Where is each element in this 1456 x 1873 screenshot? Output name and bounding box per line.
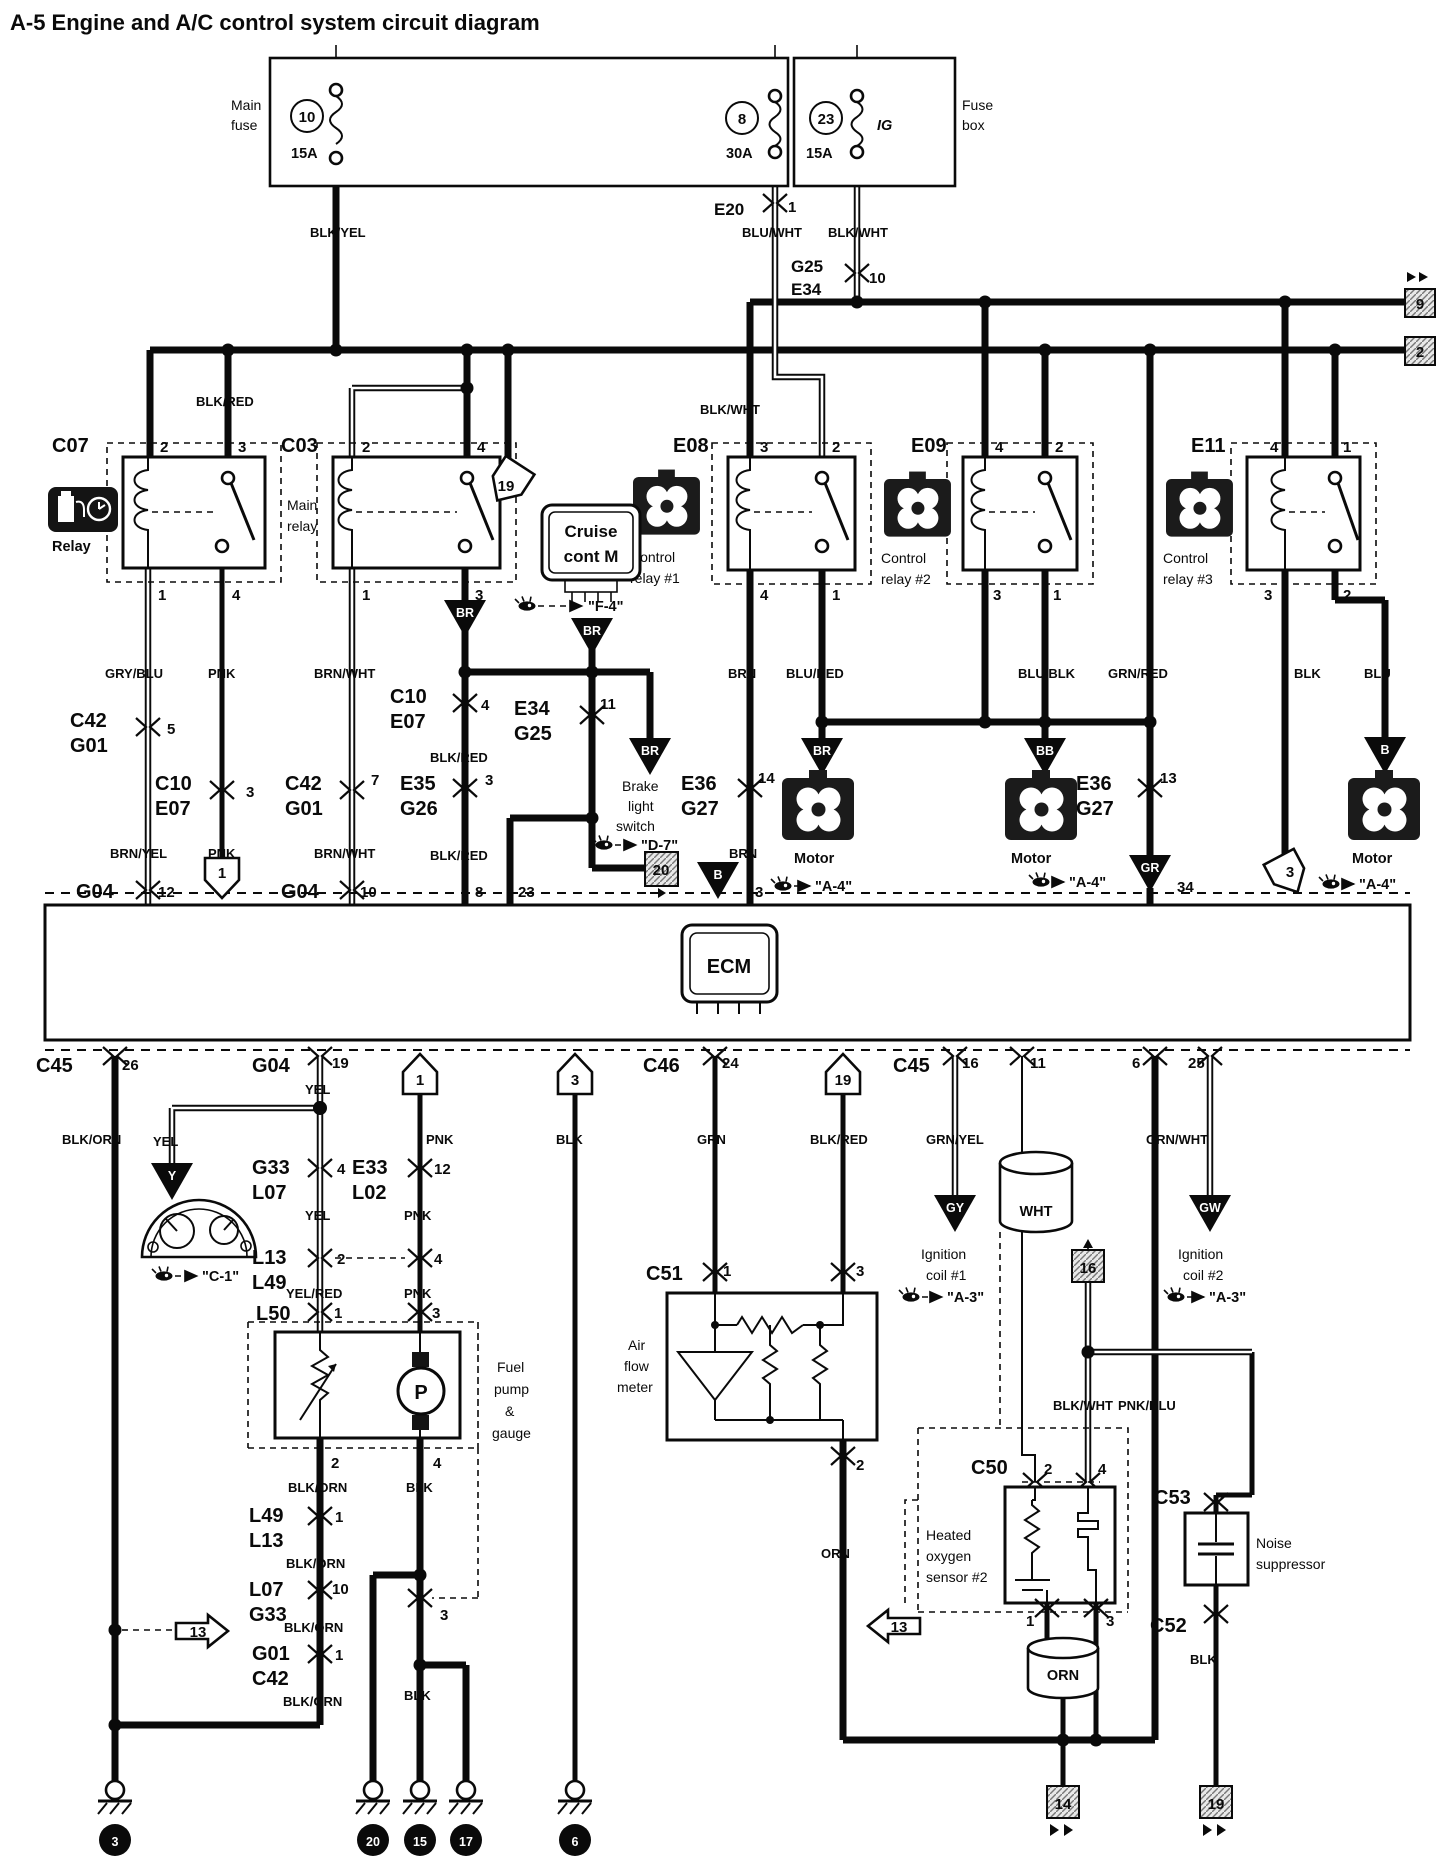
fuse-8-amp: 30A	[726, 146, 753, 162]
e08-pin-2: 2	[832, 439, 840, 456]
top-connectors: E20 1 BLU/WHT BLK/WHT G25 E34 10 BLK/YEL	[310, 194, 888, 299]
arrow-13-right: 13	[190, 1624, 207, 1641]
ecm-pin-11: 11	[1030, 1055, 1046, 1072]
c51-pin-3: 3	[856, 1263, 864, 1280]
l50-label: L50	[256, 1303, 290, 1325]
brake-label-1: Brake	[622, 778, 659, 794]
relay-e11: E11 4 1 3 2 Control relay #3	[1163, 435, 1376, 604]
e08-label: E08	[673, 435, 709, 457]
ref-a4-2: "A-4"	[1069, 875, 1106, 891]
l13-l49-b: L49	[252, 1272, 286, 1294]
ref-a3-1: "A-3"	[947, 1290, 984, 1306]
c51-label: C51	[646, 1263, 683, 1285]
blk-wht-label-e08: BLK/WHT	[700, 402, 760, 417]
afm-label-3: meter	[617, 1379, 653, 1395]
arrow-3-top: 3	[1286, 864, 1294, 881]
g25-e34-pin-10: 10	[869, 270, 886, 287]
cruise-label-1: Cruise	[565, 522, 618, 541]
continuation-16: 16	[1080, 1260, 1097, 1277]
code-br-3: BR	[641, 744, 659, 758]
afm-pin-2: 2	[856, 1457, 864, 1474]
motor-2-label: Motor	[1011, 851, 1052, 867]
g01-c42-a: G01	[252, 1643, 290, 1665]
e08-pin-3: 3	[760, 439, 768, 456]
ign2-label-1: Ignition	[1178, 1246, 1223, 1262]
l13-l49-a: L13	[252, 1247, 286, 1269]
arrow-1-top: 1	[218, 865, 226, 882]
c10-e07-pin-4: 4	[481, 697, 490, 714]
e11-pin-2: 2	[1343, 587, 1351, 604]
ground-15: 15	[413, 1835, 427, 1849]
c07-pin-4: 4	[232, 587, 241, 604]
l13-l49-pin-4: 4	[434, 1251, 443, 1268]
continuation-20: 20	[653, 862, 670, 879]
main-relay-label-1: Main	[287, 497, 317, 513]
e33-l02-pin-12: 12	[434, 1161, 451, 1178]
wht-label: WHT	[1019, 1204, 1052, 1220]
fuel-label-3: &	[505, 1403, 515, 1419]
fuse-box-label-2: box	[962, 117, 985, 133]
pnk-label-5: PNK	[404, 1286, 432, 1301]
blu-wht-label: BLU/WHT	[742, 225, 802, 240]
code-br-1: BR	[456, 606, 474, 620]
c42-g01-5-a: C42	[70, 710, 107, 732]
blk-orn-label-2: BLK/ORN	[288, 1480, 347, 1495]
ground-14: 14	[1055, 1796, 1072, 1813]
arrow-1-bottom: 1	[416, 1072, 424, 1089]
e11-pin-3: 3	[1264, 587, 1272, 604]
continuation-9: 9	[1416, 296, 1424, 313]
e08-pin-4: 4	[760, 587, 769, 604]
e34-g25-b: G25	[514, 723, 552, 745]
e36-g27-pin-13: 13	[1160, 770, 1177, 787]
e35-g26-pin-3: 3	[485, 772, 493, 789]
wiring-diagram-page: A-5 Engine and A/C control system circui…	[0, 0, 1456, 1868]
pnk-label-1: PNK	[208, 666, 236, 681]
fuel-pump-gauge: P Fuel pump & gauge 2 4 BLK/ORN BLK	[275, 1332, 531, 1495]
gry-blu-label: GRY/BLU	[105, 666, 163, 681]
e11-pin-4: 4	[1270, 439, 1279, 456]
e34-g25-a: E34	[514, 698, 550, 720]
e33-l02-a: E33	[352, 1157, 388, 1179]
relay-label: Relay	[52, 539, 91, 555]
blk-label-3: BLK	[406, 1480, 433, 1495]
ref-a3-2: "A-3"	[1209, 1290, 1246, 1306]
fuel-pin-4: 4	[433, 1455, 442, 1472]
fuel-pin-2: 2	[331, 1455, 339, 1472]
ig-label: IG	[877, 118, 892, 134]
c03-pin-4: 4	[477, 439, 486, 456]
ground-19: 19	[1208, 1796, 1225, 1813]
page-title: A-5 Engine and A/C control system circui…	[10, 10, 540, 35]
l49-l13-b: L13	[249, 1530, 283, 1552]
grn-yel-label: GRN/YEL	[926, 1132, 984, 1147]
l07-g33-pin-10: 10	[332, 1581, 349, 1598]
c03-pin-2: 2	[362, 439, 370, 456]
yel-red-label: YEL/RED	[286, 1286, 342, 1301]
e36-g27-14-b: G27	[681, 798, 719, 820]
ign1-label-1: Ignition	[921, 1246, 966, 1262]
e20-pin-1: 1	[788, 199, 796, 216]
ecm-bottom-pins: C45 26 BLK/ORN G04 19 YEL 1 PNK 3 BLK C4…	[36, 1047, 1222, 1147]
l49-l13-pin-1: 1	[335, 1509, 343, 1526]
c42-g01-pin-5: 5	[167, 721, 175, 738]
main-fuse-label-1: Main	[231, 97, 261, 113]
o2-label-2: oxygen	[926, 1548, 971, 1564]
g04-pin-19: 19	[332, 1055, 349, 1072]
e34-g25-pin-11: 11	[600, 696, 616, 713]
circuit-diagram: A-5 Engine and A/C control system circui…	[0, 0, 1456, 1868]
blk-orn-label-5: BLK/ORN	[283, 1694, 342, 1709]
c42-g01-pin-7: 7	[371, 772, 379, 789]
c07-pin-1: 1	[158, 587, 166, 604]
control-relay-3-label-1: Control	[1163, 550, 1208, 566]
o2-label-3: sensor #2	[926, 1569, 988, 1585]
ground-17: 17	[459, 1835, 473, 1849]
grn-label: GRN	[697, 1132, 726, 1147]
e36-g27-14-a: E36	[681, 773, 717, 795]
code-br-4: BR	[813, 744, 831, 758]
code-y: Y	[168, 1169, 177, 1183]
code-b-motor3: B	[1380, 743, 1389, 757]
control-relay-2-label-1: Control	[881, 550, 926, 566]
ecm-pin-25: 25	[1188, 1055, 1205, 1072]
e34-label: E34	[791, 280, 822, 299]
l07-g33-b: G33	[249, 1604, 287, 1626]
noise-label-1: Noise	[1256, 1535, 1292, 1551]
blk-label-1: BLK	[1294, 666, 1321, 681]
c03-label: C03	[281, 435, 318, 457]
fuel-label-4: gauge	[492, 1425, 531, 1441]
brn-wht-label-1: BRN/WHT	[314, 666, 375, 681]
blk-red-label-2: BLK/RED	[430, 848, 488, 863]
brake-label-3: switch	[616, 818, 655, 834]
fuse-8-number: 8	[738, 111, 746, 128]
brn-wht-label-2: BRN/WHT	[314, 846, 375, 861]
e11-label: E11	[1191, 435, 1225, 457]
ref-a4-1: "A-4"	[815, 879, 852, 895]
arrow-13-left: 13	[891, 1619, 908, 1636]
c51-pin-1: 1	[723, 1263, 731, 1280]
arrow-3-bottom: 3	[571, 1072, 579, 1089]
c03-pin-1: 1	[362, 587, 370, 604]
air-flow-meter: C51 1 3 Air flow meter 2 ORN	[617, 1263, 877, 1561]
code-bb: BB	[1036, 744, 1054, 758]
code-b-ecm: B	[713, 868, 722, 882]
blk-orn-label-1: BLK/ORN	[62, 1132, 121, 1147]
cruise-control-module: 19 Cruise cont M "F-4"	[483, 456, 640, 615]
fuel-conn-pin-3: 3	[440, 1607, 448, 1624]
grn-red-label: GRN/RED	[1108, 666, 1168, 681]
g04-10-label: G04	[281, 881, 320, 903]
g33-l07-pin-4: 4	[337, 1161, 346, 1178]
ecm-label: ECM	[707, 956, 751, 978]
blu-red-label: BLU/RED	[786, 666, 844, 681]
g25-label: G25	[791, 257, 823, 276]
ign1-label-2: coil #1	[926, 1267, 967, 1283]
control-relay-2-label-2: relay #2	[881, 571, 931, 587]
fuse-23-number: 23	[818, 111, 835, 128]
pump-p: P	[414, 1382, 427, 1404]
blk-label-2: BLK	[556, 1132, 583, 1147]
blk-red-label-3: BLK/RED	[430, 750, 488, 765]
brake-label-2: light	[628, 798, 654, 814]
c50-pin-3: 3	[1106, 1613, 1114, 1630]
e09-label: E09	[911, 435, 947, 457]
e11-pin-1: 1	[1343, 439, 1351, 456]
o2-label-1: Heated	[926, 1527, 971, 1543]
g04-12-label: G04	[76, 881, 115, 903]
fuel-label-1: Fuel	[497, 1359, 524, 1375]
c45-26-label: C45	[36, 1055, 73, 1077]
blu-blk-label: BLU/BLK	[1018, 666, 1076, 681]
ecm-pin-23: 23	[518, 884, 535, 901]
e35-g26-a: E35	[400, 773, 436, 795]
grn-wht-label: GRN/WHT	[1146, 1132, 1208, 1147]
g04-pin-10: 10	[360, 884, 377, 901]
instrument-cluster: YEL Y "C-1"	[142, 1134, 256, 1285]
c52-label: C52	[1150, 1615, 1187, 1637]
g33-l07-a: G33	[252, 1157, 290, 1179]
l49-l13-a: L49	[249, 1505, 283, 1527]
c10-e07-3-b: E07	[155, 798, 191, 820]
code-gy: GY	[946, 1201, 965, 1215]
c50-pin-4: 4	[1098, 1461, 1107, 1478]
ground-6: 6	[572, 1835, 579, 1849]
e20-label: E20	[714, 200, 744, 219]
fuse-23-amp: 15A	[806, 146, 833, 162]
c53-label: C53	[1154, 1487, 1191, 1509]
c46-label: C46	[643, 1055, 680, 1077]
c42-g01-7-b: G01	[285, 798, 323, 820]
noise-label-2: suppressor	[1256, 1556, 1326, 1572]
orn-label-2: ORN	[1047, 1668, 1079, 1684]
cruise-label-2: cont M	[564, 547, 619, 566]
blk-label-4: BLK	[404, 1688, 431, 1703]
blk-wht-label-2: BLK/WHT	[1053, 1398, 1113, 1413]
fuse-10-number: 10	[299, 109, 316, 126]
main-fuse-label-2: fuse	[231, 117, 258, 133]
brn-yel-label: BRN/YEL	[110, 846, 167, 861]
c42-g01-7-a: C42	[285, 773, 322, 795]
motor-1-label: Motor	[794, 851, 835, 867]
main-relay-label-2: relay	[287, 518, 317, 534]
arrow-19-bottom: 19	[835, 1072, 852, 1089]
ecm-pin-3: 3	[755, 884, 763, 901]
g01-c42-pin-1: 1	[335, 1647, 343, 1664]
pnk-label-3: PNK	[426, 1132, 454, 1147]
g01-c42-b: C42	[252, 1668, 289, 1690]
c10-e07-4-a: C10	[390, 686, 427, 708]
e36-g27-pin-14: 14	[758, 770, 775, 787]
blk-label-5: BLK	[1190, 1652, 1217, 1667]
blk-red-label-4: BLK/RED	[810, 1132, 868, 1147]
e36-g27-13-b: G27	[1076, 798, 1114, 820]
fuse-box-label-1: Fuse	[962, 97, 993, 113]
l13-l49-pin-2: 2	[337, 1251, 345, 1268]
brn-label-1: BRN	[728, 666, 756, 681]
c07-pin-2: 2	[160, 439, 168, 456]
l50-pin-1: 1	[334, 1305, 342, 1322]
relay-c03: C03 2 4 1 3 Main relay	[281, 435, 516, 604]
c45-pin-26: 26	[122, 1057, 139, 1074]
motor-3-label: Motor	[1352, 851, 1393, 867]
g04-pin-12: 12	[158, 884, 175, 901]
ground-3: 3	[112, 1835, 119, 1849]
fuse-box: 10 15A 8 30A 23 15A Main fuse IG Fuse bo…	[231, 58, 993, 186]
ref-c1: "C-1"	[202, 1269, 239, 1285]
brake-light-switch: Brake light switch "D-7" 20	[592, 778, 678, 898]
arrow-19-top: 19	[498, 478, 515, 495]
pnk-label-4: PNK	[404, 1208, 432, 1223]
c50-label: C50	[971, 1457, 1008, 1479]
c50-pin-1: 1	[1026, 1613, 1034, 1630]
continuation-2: 2	[1416, 344, 1424, 361]
c45-pin-16: 16	[962, 1055, 979, 1072]
blk-yel-label: BLK/YEL	[310, 225, 366, 240]
blu-label: BLU	[1364, 666, 1391, 681]
code-br-2: BR	[583, 624, 601, 638]
code-gr: GR	[1141, 861, 1160, 875]
c07-label: C07	[52, 435, 89, 457]
relay-c07: C07 2 3 1 4 BLK/RED Relay	[48, 394, 281, 604]
afm-label-1: Air	[628, 1337, 645, 1353]
noise-suppressor: C53 Noise suppressor C52 BLK	[1150, 1487, 1326, 1667]
ground-20: 20	[366, 1835, 380, 1849]
ecm-pin-34: 34	[1177, 879, 1194, 896]
blk-red-label-c07: BLK/RED	[196, 394, 254, 409]
e09-pin-3: 3	[993, 587, 1001, 604]
l50-pin-3: 3	[432, 1305, 440, 1322]
e08-pin-1: 1	[832, 587, 840, 604]
yel-label-1: YEL	[305, 1082, 330, 1097]
c10-e07-pin-3: 3	[246, 784, 254, 801]
fuse-10-amp: 15A	[291, 146, 318, 162]
fuel-label-2: pump	[494, 1381, 529, 1397]
ecm-pin-6: 6	[1132, 1055, 1140, 1072]
e35-g26-b: G26	[400, 798, 438, 820]
c10-e07-3-a: C10	[155, 773, 192, 795]
c07-pin-3: 3	[238, 439, 246, 456]
e09-pin-4: 4	[995, 439, 1004, 456]
l07-g33-a: L07	[249, 1579, 283, 1601]
pnk-blu-label: PNK/BLU	[1118, 1398, 1176, 1413]
blk-orn-label-4: BLK/ORN	[284, 1620, 343, 1635]
code-gw: GW	[1199, 1201, 1221, 1215]
e09-pin-1: 1	[1053, 587, 1061, 604]
ecm: ECM	[45, 905, 1410, 1040]
afm-label-2: flow	[624, 1358, 650, 1374]
c46-pin-24: 24	[722, 1055, 739, 1072]
grounds: 3 20 15 17 6 14 19	[98, 1781, 1232, 1856]
orn-label-1: ORN	[821, 1546, 850, 1561]
c45-16-label: C45	[893, 1055, 930, 1077]
brn-label-2: BRN	[729, 846, 757, 861]
g04-19-label: G04	[252, 1055, 291, 1077]
c10-e07-4-b: E07	[390, 711, 426, 733]
yel-label-3: YEL	[305, 1208, 330, 1223]
c42-g01-5-b: G01	[70, 735, 108, 757]
fuel-ground-chain: L49 L13 1 BLK/ORN L07 G33 10 BLK/ORN G01…	[176, 1505, 448, 1709]
e33-l02-b: L02	[352, 1182, 386, 1204]
blk-wht-label: BLK/WHT	[828, 225, 888, 240]
continuation-boxes-top-right: 9 2	[1405, 272, 1435, 365]
ref-f4: "F-4"	[588, 599, 624, 615]
e36-g27-13-a: E36	[1076, 773, 1112, 795]
ref-a4-3: "A-4"	[1359, 877, 1396, 893]
control-relay-3-label-2: relay #3	[1163, 571, 1213, 587]
ecm-pin-8: 8	[475, 884, 483, 901]
yel-label-2: YEL	[153, 1134, 178, 1149]
ign2-label-2: coil #2	[1183, 1267, 1224, 1283]
blk-orn-label-3: BLK/ORN	[286, 1556, 345, 1571]
g33-l07-b: L07	[252, 1182, 286, 1204]
triangles-top: BR BR BR BR BB B B GR	[444, 600, 1406, 899]
e09-pin-2: 2	[1055, 439, 1063, 456]
